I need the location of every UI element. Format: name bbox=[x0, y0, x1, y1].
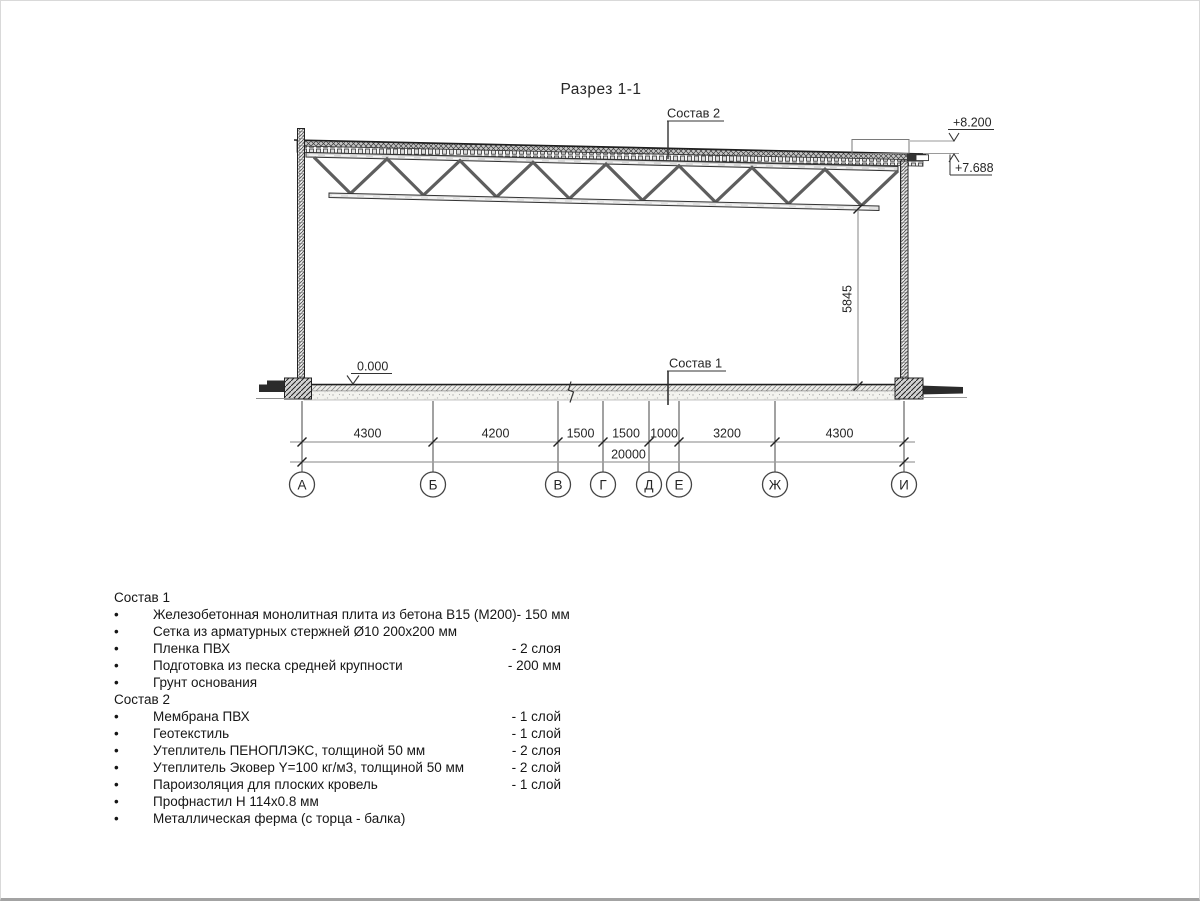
spec-item: •Грунт основания bbox=[114, 674, 561, 691]
elevation-mark-high: +8.200 bbox=[910, 116, 994, 142]
bullet-icon: • bbox=[114, 759, 153, 776]
callout-sostav1-label: Состав 1 bbox=[669, 356, 722, 371]
spec-item: •Утеплитель Эковер Y=100 кг/м3, толщиной… bbox=[114, 759, 561, 776]
zero-level-value: 0.000 bbox=[357, 360, 388, 374]
left-foundation bbox=[256, 378, 312, 399]
spec-item-name: Утеплитель ПЕНОПЛЭКС, толщиной 50 мм bbox=[153, 742, 512, 759]
bullet-icon: • bbox=[114, 623, 153, 640]
axis-label: Г bbox=[599, 478, 607, 493]
dim-span-6: 4300 bbox=[826, 427, 854, 441]
spec-item: •Железобетонная монолитная плита из бето… bbox=[114, 606, 561, 623]
right-foundation bbox=[895, 378, 967, 399]
dim-span-1: 4200 bbox=[482, 427, 510, 441]
axis-label: Ж bbox=[769, 478, 782, 493]
drawing-sheet: Разрез 1-1 bbox=[0, 0, 1200, 901]
dim-span-2: 1500 bbox=[567, 427, 595, 441]
spec-item: •Утеплитель ПЕНОПЛЭКС, толщиной 50 мм- 2… bbox=[114, 742, 561, 759]
axis-bubble: В bbox=[546, 472, 571, 497]
axis-label: А bbox=[297, 478, 306, 493]
axis-label: И bbox=[899, 478, 909, 493]
bullet-icon: • bbox=[114, 725, 153, 742]
spec-item: •Пленка ПВХ- 2 слоя bbox=[114, 640, 561, 657]
axis-bubble: И bbox=[892, 472, 917, 497]
axis-bubble: Г bbox=[591, 472, 616, 497]
dimension-chains: 4300 4200 1500 1500 1000 3200 4300 20000 bbox=[290, 401, 915, 472]
bullet-icon: • bbox=[114, 810, 153, 827]
spec-item-value: - 2 слой bbox=[512, 759, 561, 776]
right-foundation-block bbox=[895, 378, 923, 399]
spec-item-name: Железобетонная монолитная плита из бетон… bbox=[153, 606, 517, 623]
bullet-icon: • bbox=[114, 640, 153, 657]
spec-item-name: Сетка из арматурных стержней Ø10 200х200… bbox=[153, 623, 561, 640]
elevation-mark-low: +7.688 bbox=[923, 154, 994, 176]
floor-concrete-layer bbox=[304, 385, 900, 391]
right-base-beam bbox=[919, 386, 963, 395]
left-base-beam bbox=[259, 385, 287, 393]
spec-item: •Геотекстиль- 1 слой bbox=[114, 725, 561, 742]
elevation-low-value: +7.688 bbox=[955, 161, 994, 175]
bullet-icon: • bbox=[114, 674, 153, 691]
axis-label: Б bbox=[429, 478, 438, 493]
spec-item-name: Утеплитель Эковер Y=100 кг/м3, толщиной … bbox=[153, 759, 512, 776]
zero-level-mark: 0.000 bbox=[347, 360, 392, 385]
section-drawing: Разрез 1-1 bbox=[1, 1, 1200, 561]
spec-heading-sostav2: Состав 2 bbox=[114, 691, 561, 708]
spec-item-value: - 200 мм bbox=[508, 657, 561, 674]
spec-item-name: Профнастил Н 114х0.8 мм bbox=[153, 793, 561, 810]
bullet-icon: • bbox=[114, 657, 153, 674]
elevation-high-value: +8.200 bbox=[953, 116, 992, 130]
bullet-icon: • bbox=[114, 793, 153, 810]
spec-item: •Профнастил Н 114х0.8 мм bbox=[114, 793, 561, 810]
spec-item-value: - 2 слоя bbox=[512, 640, 561, 657]
bullet-icon: • bbox=[114, 776, 153, 793]
floor-sand-layer bbox=[304, 391, 900, 400]
spec-item-name: Геотекстиль bbox=[153, 725, 512, 742]
axis-bubble: Д bbox=[637, 472, 662, 497]
axis-bubbles: А Б В Г Д Е Ж И bbox=[290, 472, 917, 497]
spec-item: •Пароизоляция для плоских кровель- 1 сло… bbox=[114, 776, 561, 793]
height-dimension: 5845 bbox=[841, 205, 863, 391]
spec-item-name: Металлическая ферма (с торца - балка) bbox=[153, 810, 561, 827]
left-wall-panel bbox=[298, 129, 305, 387]
axis-label: Е bbox=[674, 478, 683, 493]
axis-bubble: А bbox=[290, 472, 315, 497]
spec-item-name: Подготовка из песка средней крупности bbox=[153, 657, 508, 674]
bullet-icon: • bbox=[114, 742, 153, 759]
dim-span-4: 1000 bbox=[650, 427, 678, 441]
floor-slab bbox=[304, 382, 900, 403]
spec-item-value: - 150 мм bbox=[517, 606, 570, 623]
spec-item-name: Пленка ПВХ bbox=[153, 640, 512, 657]
axis-bubble: Ж bbox=[763, 472, 788, 497]
dim-span-0: 4300 bbox=[354, 427, 382, 441]
down-arrow-icon bbox=[347, 376, 359, 385]
roof-edge-flashing bbox=[916, 155, 929, 161]
spec-item-name: Грунт основания bbox=[153, 674, 561, 691]
spec-item-value: - 2 слоя bbox=[512, 742, 561, 759]
axis-label: Д bbox=[644, 478, 653, 493]
spec-item: •Металлическая ферма (с торца - балка) bbox=[114, 810, 561, 827]
left-foundation-block bbox=[285, 378, 312, 399]
down-arrow-icon bbox=[949, 133, 959, 141]
spec-heading-sostav1: Состав 1 bbox=[114, 589, 561, 606]
spec-item: •Сетка из арматурных стержней Ø10 200х20… bbox=[114, 623, 561, 640]
spec-item: •Подготовка из песка средней крупности- … bbox=[114, 657, 561, 674]
spec-item-name: Пароизоляция для плоских кровель bbox=[153, 776, 512, 793]
axis-bubble: Е bbox=[667, 472, 692, 497]
bullet-icon: • bbox=[114, 708, 153, 725]
dim-span-5: 3200 bbox=[713, 427, 741, 441]
roof-edge-curb bbox=[852, 140, 909, 154]
axis-label: В bbox=[553, 478, 562, 493]
dim-total: 20000 bbox=[611, 448, 646, 462]
material-specs: Состав 1 •Железобетонная монолитная плит… bbox=[114, 589, 561, 827]
spec-item-value: - 1 слой bbox=[512, 725, 561, 742]
spec-item-value: - 1 слой bbox=[512, 776, 561, 793]
callout-sostav2-label: Состав 2 bbox=[667, 106, 720, 121]
axis-bubble: Б bbox=[421, 472, 446, 497]
spec-item-name: Мембрана ПВХ bbox=[153, 708, 512, 725]
drawing-title: Разрез 1-1 bbox=[560, 81, 641, 98]
right-wall-panel bbox=[901, 161, 909, 386]
bullet-icon: • bbox=[114, 606, 153, 623]
spec-item: •Мембрана ПВХ- 1 слой bbox=[114, 708, 561, 725]
spec-item-value: - 1 слой bbox=[512, 708, 561, 725]
height-dim-value: 5845 bbox=[841, 285, 855, 313]
dim-span-3: 1500 bbox=[612, 427, 640, 441]
